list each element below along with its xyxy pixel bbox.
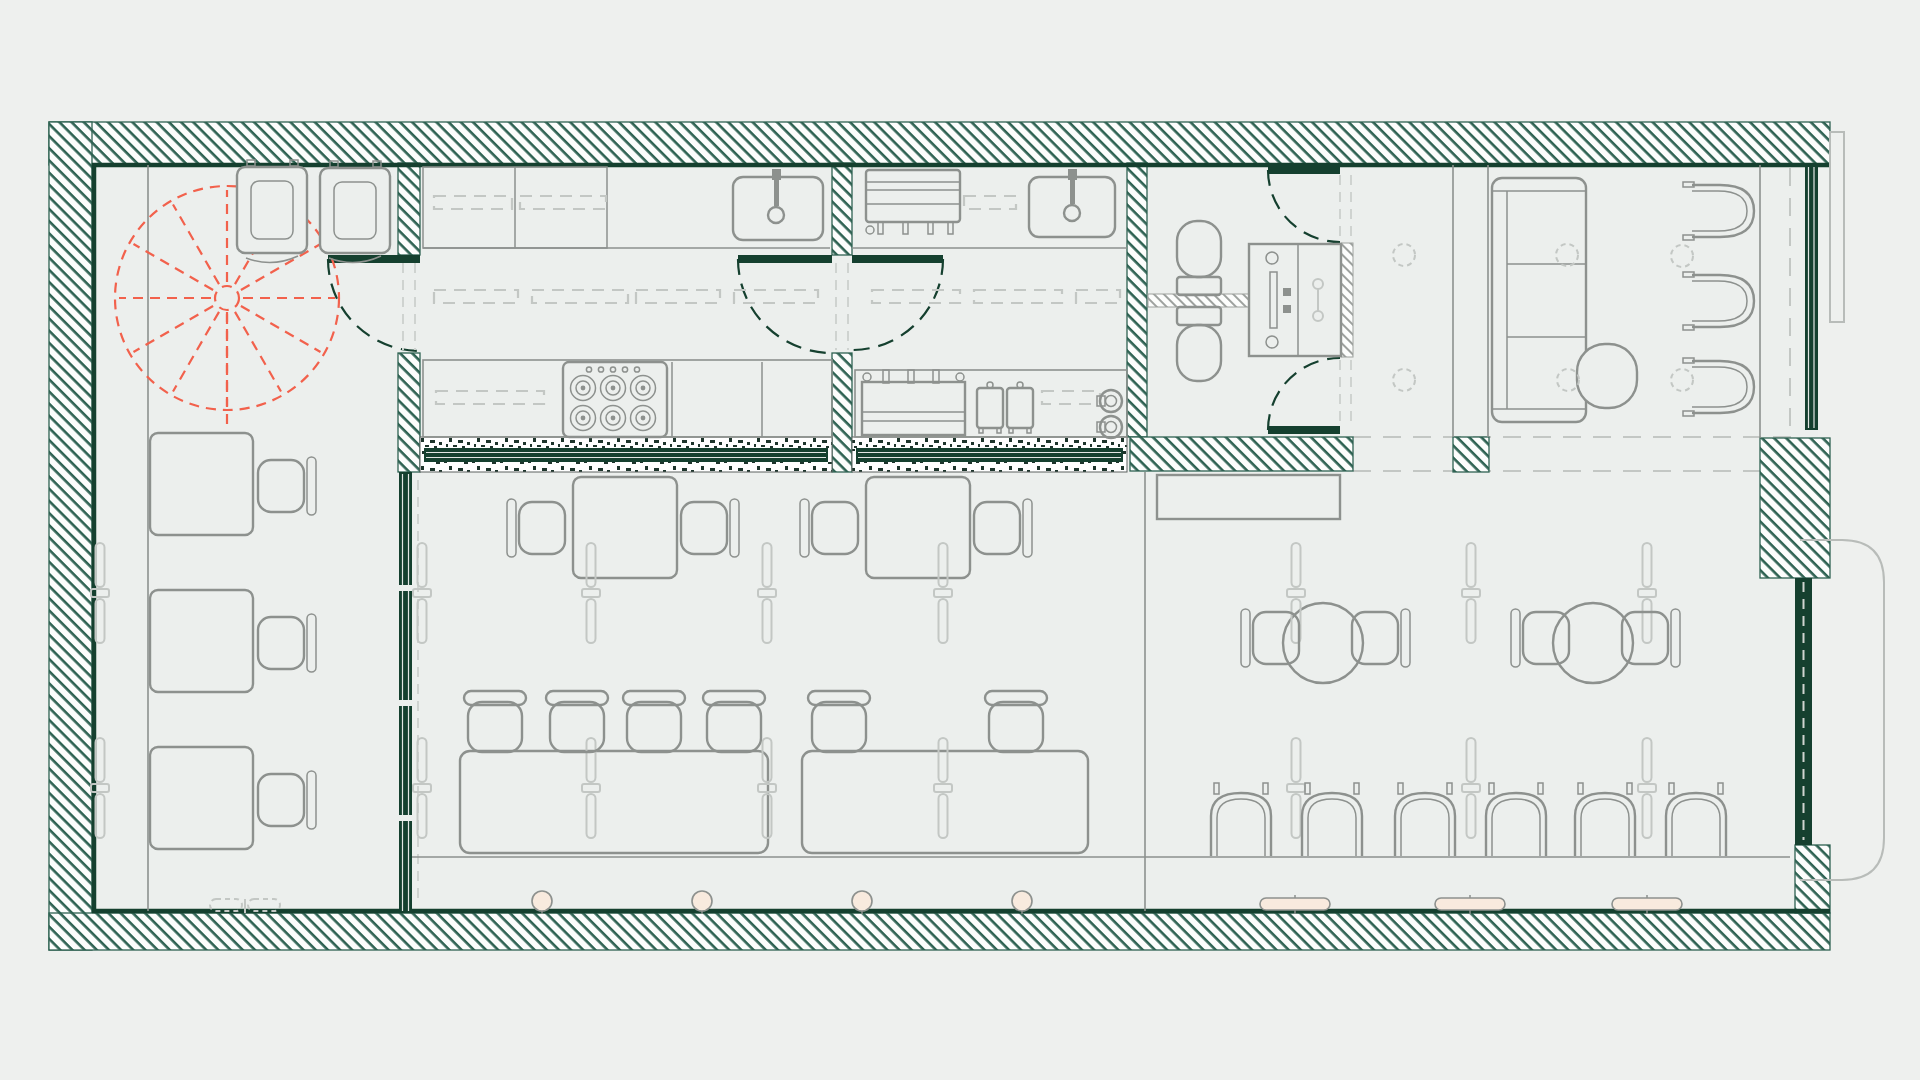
floor-plan-canvas bbox=[0, 0, 1920, 1080]
pillar-kitchen1-top bbox=[398, 163, 420, 255]
pillar-corridor bbox=[1453, 437, 1489, 472]
pillar-kitchen1-bottom bbox=[398, 353, 420, 472]
pillar-kitchen2-top bbox=[832, 163, 852, 255]
pillar-kitchen2-bottom bbox=[832, 353, 852, 472]
wall-bottom bbox=[49, 913, 1830, 950]
exterior-right-upper bbox=[1818, 165, 1920, 438]
wc-side-strip bbox=[1341, 243, 1353, 357]
floor bbox=[92, 163, 1830, 913]
exterior-right-lower bbox=[1812, 578, 1920, 845]
wall-left bbox=[49, 122, 92, 950]
window-right-upper bbox=[1805, 165, 1818, 430]
wall-top bbox=[49, 122, 1830, 165]
bar-counter bbox=[420, 437, 1127, 472]
wall-wc-left bbox=[1127, 163, 1147, 437]
pouf bbox=[1577, 344, 1637, 408]
wall-wc-bottom bbox=[1130, 437, 1353, 471]
window-right-lower bbox=[1795, 578, 1812, 845]
floor-plan-drawing bbox=[0, 0, 1920, 1080]
refrigerator-1 bbox=[237, 160, 307, 263]
pillar-right-block bbox=[1760, 438, 1830, 578]
refrigerator-2 bbox=[320, 161, 390, 263]
